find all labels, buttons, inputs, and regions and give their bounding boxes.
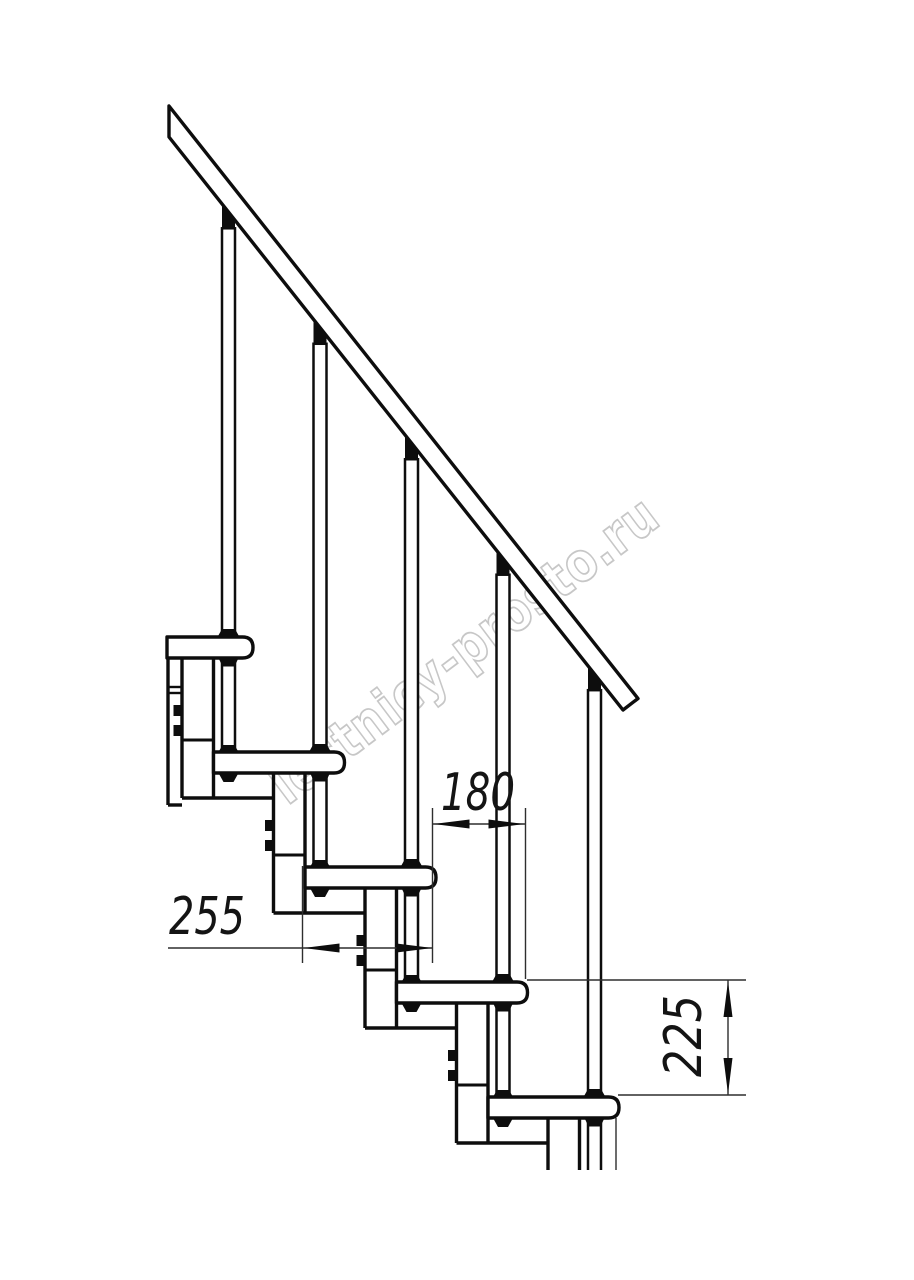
baluster-upper-segment	[314, 344, 327, 752]
stair-side-elevation-drawing: lestnicy-prosto.ru 180 255 225	[0, 0, 914, 1280]
technical-drawing-page: lestnicy-prosto.ru 180 255 225	[0, 0, 914, 1280]
dimension-label-tread-depth: 255	[169, 887, 245, 947]
baluster-lower-segment	[222, 658, 235, 752]
bolt	[357, 935, 367, 946]
dimension-label-step-rise: 225	[654, 995, 714, 1077]
tread	[488, 1097, 619, 1118]
bolt	[357, 955, 367, 966]
baluster-lower-segment	[405, 888, 418, 982]
bolt	[265, 820, 275, 831]
baluster-clamp	[219, 773, 239, 782]
dimension-arrow	[304, 944, 340, 953]
baluster-lower-segment	[314, 773, 327, 867]
baluster-lower-segment	[497, 1003, 510, 1097]
tread	[214, 752, 345, 773]
handrail	[169, 106, 638, 710]
tread	[305, 867, 436, 888]
bolt	[448, 1050, 458, 1061]
bolt	[448, 1070, 458, 1081]
tread	[167, 637, 253, 658]
dimension-arrow	[724, 981, 733, 1017]
tread	[397, 982, 528, 1003]
bolt	[174, 705, 184, 716]
baluster-clamp	[310, 888, 330, 897]
baluster-upper-segment	[405, 459, 418, 867]
baluster-clamp	[493, 1118, 513, 1127]
dimension-label-step-run: 180	[441, 763, 515, 823]
bolt	[174, 725, 184, 736]
bolt	[265, 840, 275, 851]
dimension-arrow	[724, 1058, 733, 1094]
baluster-clamp	[402, 1003, 422, 1012]
baluster-upper-segment	[588, 690, 601, 1097]
baluster-upper-segment	[222, 228, 235, 637]
